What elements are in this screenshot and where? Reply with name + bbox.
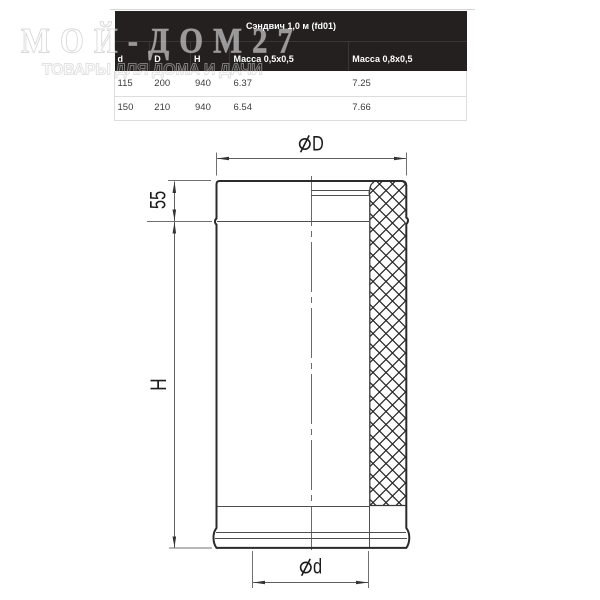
svg-text:D: D bbox=[312, 132, 324, 155]
svg-text:d: d bbox=[313, 555, 322, 578]
svg-text:ТОВАРЫ ДЛЯ ДОМА И ДАЧИ: ТОВАРЫ ДЛЯ ДОМА И ДАЧИ bbox=[42, 62, 262, 79]
svg-text:H: H bbox=[147, 378, 172, 390]
svg-text:МОЙ-ДОМ27: МОЙ-ДОМ27 bbox=[21, 21, 303, 61]
svg-text:55: 55 bbox=[146, 191, 171, 209]
